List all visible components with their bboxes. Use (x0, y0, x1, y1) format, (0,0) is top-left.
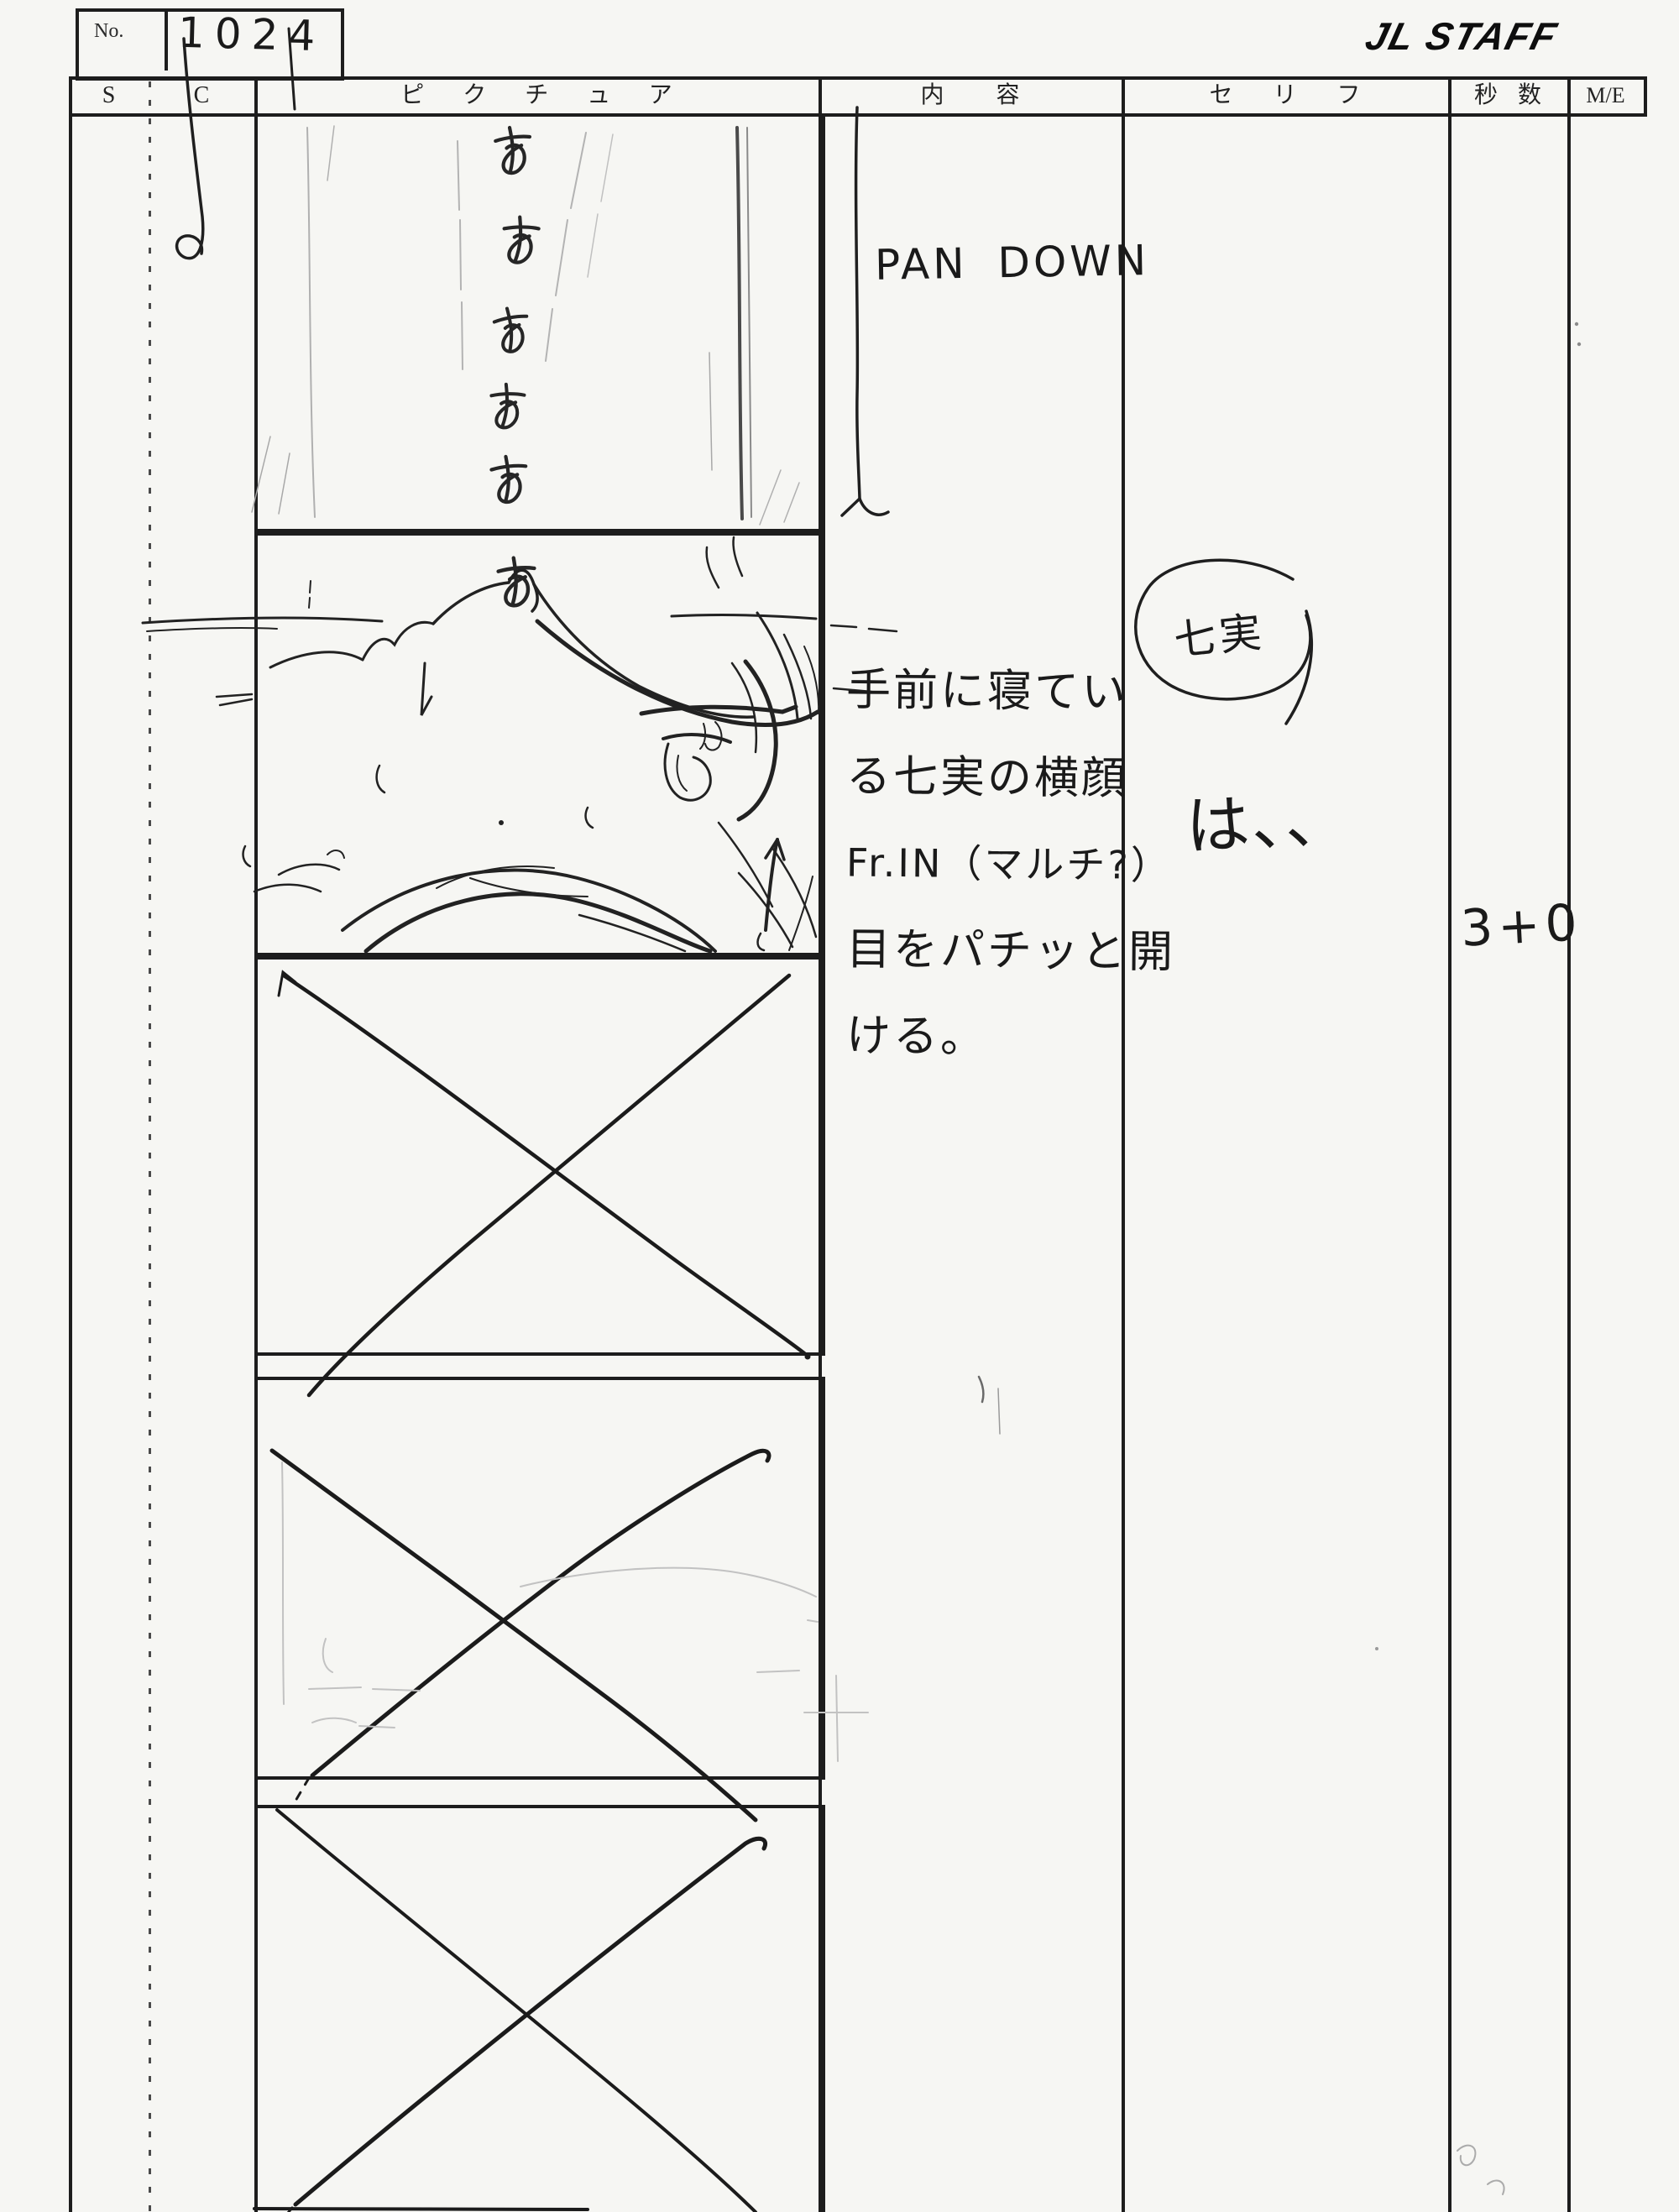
stray-marks (979, 322, 1581, 2194)
character-name: 七実 (1171, 599, 1268, 668)
action-line: Fr.IN（マルチ?） (846, 820, 1132, 909)
duration-value: 3+0 (1459, 893, 1583, 958)
header-content: 内容 (819, 80, 1122, 113)
table-left-border (69, 76, 72, 2212)
s-c-dotted-divider (149, 81, 151, 2212)
panel-3-frame (254, 953, 825, 1356)
action-description: 手前に寝てい る七実の横顔 Fr.IN（マルチ?） 目をパチッと開 ける。 (846, 648, 1132, 1080)
cut-number-value: 1024 (177, 8, 326, 61)
action-line: る七実の横顔 (846, 734, 1132, 823)
content-dialogue-divider (1122, 76, 1125, 2212)
pan-down-arrow (842, 107, 888, 515)
panel-1-frame (254, 113, 825, 536)
header-dialogue: セリフ (1122, 80, 1448, 113)
action-line: 目をパチッと開 (846, 907, 1132, 996)
table-right-border (1644, 76, 1647, 117)
camera-direction-note: PAN DOWN (875, 236, 1150, 290)
header-picture: ピクチュア (254, 80, 819, 113)
panel-2-frame (254, 529, 825, 960)
cut-number-label: No. (94, 20, 123, 43)
panel-4-frame (254, 1377, 825, 1780)
studio-logo: JL STAFF (1361, 13, 1657, 59)
dialogue-line: は、、 (1183, 766, 1352, 867)
header-me: M/E (1567, 80, 1644, 113)
storyboard-sheet: No. 1024 JL STAFF S C ピクチュア 内容 セリフ 秒数 M/… (0, 0, 1679, 2212)
sketch-overlay (0, 0, 1679, 2212)
cut-number-divider (165, 12, 168, 71)
seconds-me-divider (1567, 76, 1571, 2212)
dialogue-seconds-divider (1448, 76, 1451, 2212)
header-c: C (149, 80, 254, 113)
action-line: 手前に寝てい (846, 647, 1132, 736)
header-seconds: 秒数 (1448, 80, 1567, 113)
header-s: S (69, 80, 149, 113)
action-line: ける。 (846, 993, 1132, 1082)
panel-5-frame (254, 1805, 825, 2212)
cut-number-box: No. 1024 (76, 8, 344, 81)
